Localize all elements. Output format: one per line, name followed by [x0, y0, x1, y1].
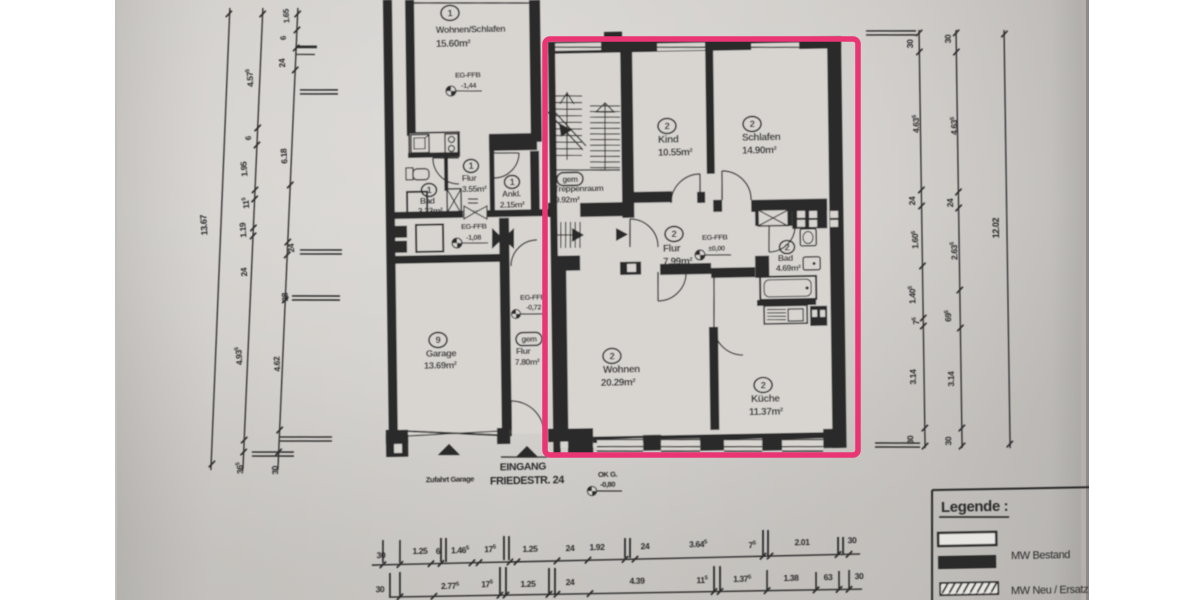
- svg-text:7.80m²: 7.80m²: [515, 357, 540, 367]
- svg-text:EG-FFB: EG-FFB: [455, 70, 482, 80]
- svg-text:Wohnen: Wohnen: [603, 364, 640, 376]
- svg-text:30: 30: [848, 535, 857, 545]
- svg-text:24: 24: [945, 198, 955, 208]
- svg-text:1.92: 1.92: [589, 542, 605, 552]
- svg-text:gem: gem: [521, 335, 537, 344]
- svg-text:3.14: 3.14: [946, 371, 956, 387]
- svg-text:2: 2: [609, 351, 614, 362]
- svg-text:-1,08: -1,08: [466, 233, 481, 242]
- svg-text:9.92m²: 9.92m²: [555, 194, 580, 204]
- svg-text:30: 30: [943, 436, 953, 446]
- svg-text:EG-FFB: EG-FFB: [461, 222, 488, 232]
- svg-text:11.37m²: 11.37m²: [749, 406, 784, 418]
- svg-text:9: 9: [435, 335, 440, 346]
- svg-text:10.55m²: 10.55m²: [658, 147, 694, 159]
- svg-text:2: 2: [750, 119, 755, 130]
- svg-text:30: 30: [905, 39, 915, 49]
- svg-text:3.14: 3.14: [908, 369, 918, 385]
- svg-text:1.65: 1.65: [281, 8, 291, 24]
- svg-text:1.19: 1.19: [237, 222, 248, 238]
- svg-text:Flur: Flur: [462, 173, 478, 183]
- svg-text:30: 30: [376, 550, 385, 560]
- svg-text:±0,00: ±0,00: [708, 244, 725, 253]
- svg-text:6.18: 6.18: [278, 148, 289, 164]
- svg-text:Legende :: Legende :: [941, 498, 1008, 516]
- svg-text:Kind: Kind: [658, 135, 679, 146]
- svg-text:38: 38: [280, 292, 291, 302]
- svg-text:13.69m²: 13.69m²: [424, 360, 457, 372]
- svg-text:4.69m²: 4.69m²: [776, 262, 801, 272]
- svg-text:2: 2: [672, 229, 677, 240]
- svg-text:12.02: 12.02: [991, 217, 1001, 238]
- svg-text:63: 63: [824, 572, 833, 582]
- svg-text:2.15m²: 2.15m²: [500, 200, 525, 210]
- svg-text:24: 24: [277, 58, 288, 68]
- svg-text:1.38: 1.38: [783, 573, 799, 583]
- svg-text:13.67: 13.67: [198, 214, 209, 236]
- svg-text:Zufahrt Garage: Zufahrt Garage: [426, 475, 475, 485]
- svg-text:3.55m²: 3.55m²: [462, 184, 487, 194]
- svg-text:MW Bestand: MW Bestand: [1011, 549, 1070, 562]
- svg-text:FRIEDESTR. 24: FRIEDESTR. 24: [490, 474, 565, 487]
- svg-text:24: 24: [907, 196, 917, 206]
- svg-text:1.25: 1.25: [522, 544, 538, 554]
- svg-text:30: 30: [943, 34, 953, 44]
- svg-text:Küche: Küche: [751, 394, 781, 406]
- svg-text:Ankl.: Ankl.: [502, 189, 521, 199]
- svg-text:2: 2: [761, 380, 766, 391]
- svg-text:30: 30: [855, 571, 864, 581]
- svg-text:Schlafen: Schlafen: [742, 132, 781, 144]
- svg-text:14.90m²: 14.90m²: [742, 145, 778, 157]
- svg-text:Flur: Flur: [663, 244, 681, 255]
- svg-text:24: 24: [641, 541, 650, 551]
- svg-text:30: 30: [376, 584, 385, 594]
- svg-text:15.60m²: 15.60m²: [436, 38, 472, 50]
- svg-text:1.25: 1.25: [520, 579, 536, 589]
- svg-text:2: 2: [785, 242, 790, 253]
- svg-text:Flur: Flur: [516, 346, 532, 356]
- svg-text:Bad: Bad: [420, 196, 435, 206]
- svg-text:Garage: Garage: [426, 348, 457, 360]
- svg-text:24: 24: [566, 543, 575, 553]
- svg-text:24: 24: [286, 243, 297, 253]
- svg-text:Treppenraum: Treppenraum: [554, 183, 604, 194]
- svg-text:-0,80: -0,80: [600, 480, 615, 489]
- svg-text:OK G.: OK G.: [598, 470, 618, 479]
- svg-text:30: 30: [270, 465, 281, 475]
- svg-text:Bad: Bad: [778, 253, 793, 263]
- svg-text:EINGANG: EINGANG: [500, 461, 547, 474]
- svg-text:2.01: 2.01: [794, 537, 810, 547]
- svg-text:1.95: 1.95: [238, 161, 249, 177]
- svg-text:24: 24: [566, 577, 575, 587]
- svg-text:4.39: 4.39: [629, 576, 645, 586]
- svg-text:2: 2: [664, 121, 669, 132]
- svg-text:1.25: 1.25: [412, 546, 428, 556]
- svg-text:20.29m²: 20.29m²: [601, 377, 637, 389]
- svg-text:Wohnen/Schlafen: Wohnen/Schlafen: [436, 24, 505, 35]
- svg-text:4.62: 4.62: [271, 356, 282, 372]
- svg-text:MW Neu / Ersatz: MW Neu / Ersatz: [1011, 584, 1088, 597]
- svg-text:-1,44: -1,44: [461, 81, 477, 90]
- svg-text:24: 24: [239, 267, 250, 277]
- svg-text:-0,72: -0,72: [526, 303, 541, 312]
- svg-text:EG-FFB: EG-FFB: [702, 232, 729, 242]
